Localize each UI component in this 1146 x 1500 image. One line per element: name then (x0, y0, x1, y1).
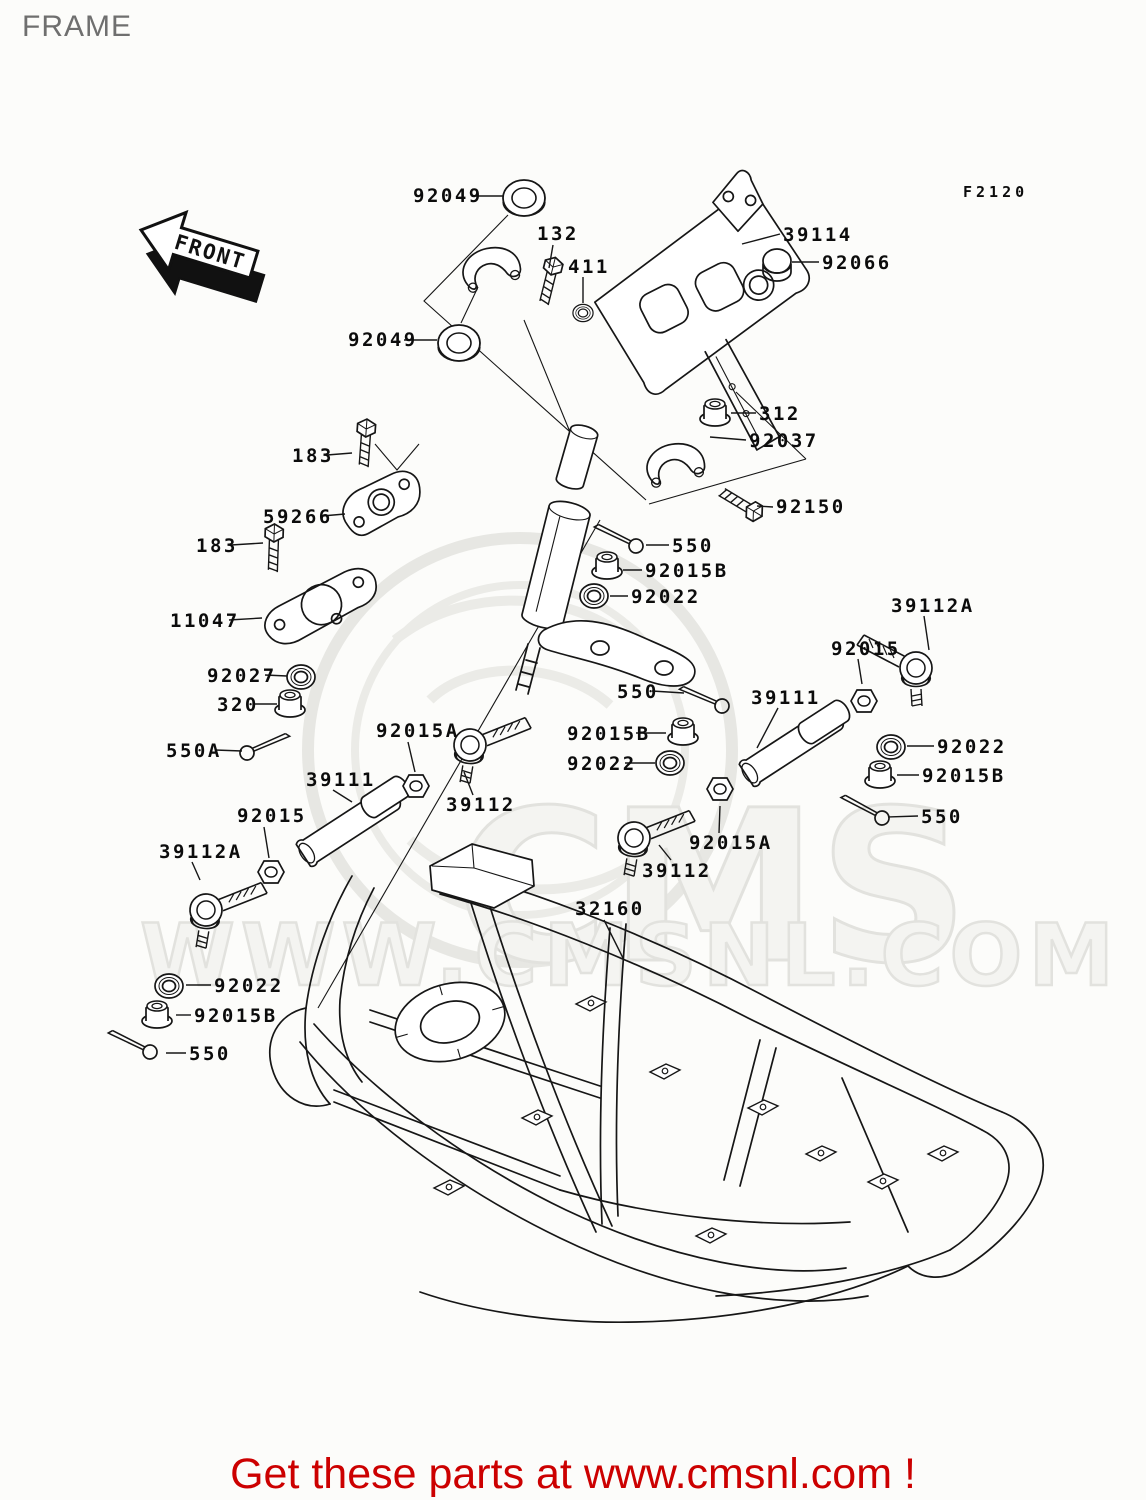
part-label-39111-30: 39111 (751, 687, 821, 709)
part-label-550-9: 550 (672, 535, 714, 557)
part-label-92027-16: 92027 (207, 665, 277, 687)
part-label-32160-38: 32160 (575, 898, 645, 920)
part-label-312-6: 312 (759, 403, 801, 425)
leader-line-92015a-31 (719, 806, 720, 833)
leader-line-39111-20 (333, 790, 352, 802)
part-label-92022-35: 92022 (937, 736, 1007, 758)
part-label-92015-22: 92015 (237, 805, 307, 827)
pin-550A (239, 733, 292, 760)
part-label-92049-0: 92049 (413, 185, 483, 207)
front-direction-arrow: FRONT (126, 201, 275, 317)
part-label-92015b-36: 92015B (922, 765, 1006, 787)
steering-bracket-39114 (575, 168, 882, 483)
nut-92015-right (851, 690, 877, 712)
leader-line-39112a-33 (924, 616, 929, 650)
part-label-11047-15: 11047 (170, 610, 240, 632)
nut-92015B-a (592, 552, 622, 579)
nut-92015B-center (668, 718, 698, 745)
washer-92022-center (656, 751, 684, 775)
washer-92027 (287, 665, 315, 689)
part-label-39112a-33: 39112A (891, 595, 975, 617)
part-label-92015b-25: 92015B (194, 1005, 278, 1027)
parts-diagram: CMS WWW.CMSNL.COM FRONT F2120 (0, 0, 1146, 1500)
leader-line-92037-7 (710, 437, 746, 440)
part-label-550-37: 550 (921, 806, 963, 828)
part-label-92015-34: 92015 (831, 638, 901, 660)
part-label-183-14: 183 (196, 535, 238, 557)
part-label-92015a-19: 92015A (376, 720, 460, 742)
part-label-550a-18: 550A (166, 740, 222, 762)
parts-catalog-page: { "page": { "title": "FRAME", "figure_co… (0, 0, 1146, 1500)
bolt-92150 (716, 484, 766, 524)
nut-92015A-left (403, 775, 429, 797)
part-label-39112a-23: 39112A (159, 841, 243, 863)
nut-92015B-right (865, 761, 895, 788)
nut-312 (700, 399, 730, 426)
bolt-183-lower (264, 524, 284, 573)
leader-line-550-37 (888, 816, 918, 817)
part-label-39112-21: 39112 (446, 794, 516, 816)
nut-92015B-bottom-left (142, 1001, 172, 1028)
washer-92022-right (877, 735, 905, 759)
bolt-183-upper (355, 418, 376, 467)
part-label-92049-5: 92049 (348, 329, 418, 351)
holder-92037 (642, 437, 707, 489)
part-label-39111-20: 39111 (306, 769, 376, 791)
flange-holder-59266 (335, 466, 429, 540)
leader-line-39112a-23 (192, 862, 200, 880)
part-label-92022-11: 92022 (631, 586, 701, 608)
part-label-92015a-31: 92015A (689, 832, 773, 854)
bushing-92049-upper (503, 180, 545, 216)
part-label-320-17: 320 (217, 694, 259, 716)
leader-line-92015a-19 (408, 742, 415, 772)
part-label-550-27: 550 (617, 681, 659, 703)
pin-550-bottom-left (105, 1030, 159, 1060)
part-label-39112-32: 39112 (642, 860, 712, 882)
leader-line-92015-22 (264, 827, 269, 858)
footer-link-text[interactable]: Get these parts at www.cmsnl.com ! (230, 1450, 916, 1499)
leader-line-92015-34 (858, 659, 862, 684)
part-label-550-26: 550 (189, 1043, 231, 1065)
part-label-92037-7: 92037 (749, 430, 819, 452)
footer-banner[interactable]: Get these parts at www.cmsnl.com ! (0, 1448, 1146, 1500)
part-label-92022-24: 92022 (214, 975, 284, 997)
part-label-59266-13: 59266 (263, 506, 333, 528)
part-label-92022-29: 92022 (567, 753, 637, 775)
part-label-92150-8: 92150 (776, 496, 846, 518)
nut-320 (275, 690, 305, 717)
leader-line-92150-8 (757, 506, 773, 507)
washer-92022-bottom-left (155, 974, 183, 998)
part-label-132-1: 132 (537, 223, 579, 245)
washer-411 (573, 304, 593, 321)
part-label-39114-3: 39114 (783, 224, 853, 246)
nut-92015A-center (707, 778, 733, 800)
part-label-411-2: 411 (568, 256, 610, 278)
watermark-site-text: WWW.CMSNL.COM (140, 906, 1120, 1006)
holder-upper (457, 240, 524, 295)
washer-92022-a (580, 584, 608, 608)
figure-code: F2120 (963, 183, 1028, 201)
part-label-92015b-10: 92015B (645, 560, 729, 582)
nut-92015-left (258, 861, 284, 883)
part-label-92015b-28: 92015B (567, 723, 651, 745)
part-label-92066-4: 92066 (822, 252, 892, 274)
bushing-92049-lower (438, 325, 480, 361)
part-label-183-12: 183 (292, 445, 334, 467)
